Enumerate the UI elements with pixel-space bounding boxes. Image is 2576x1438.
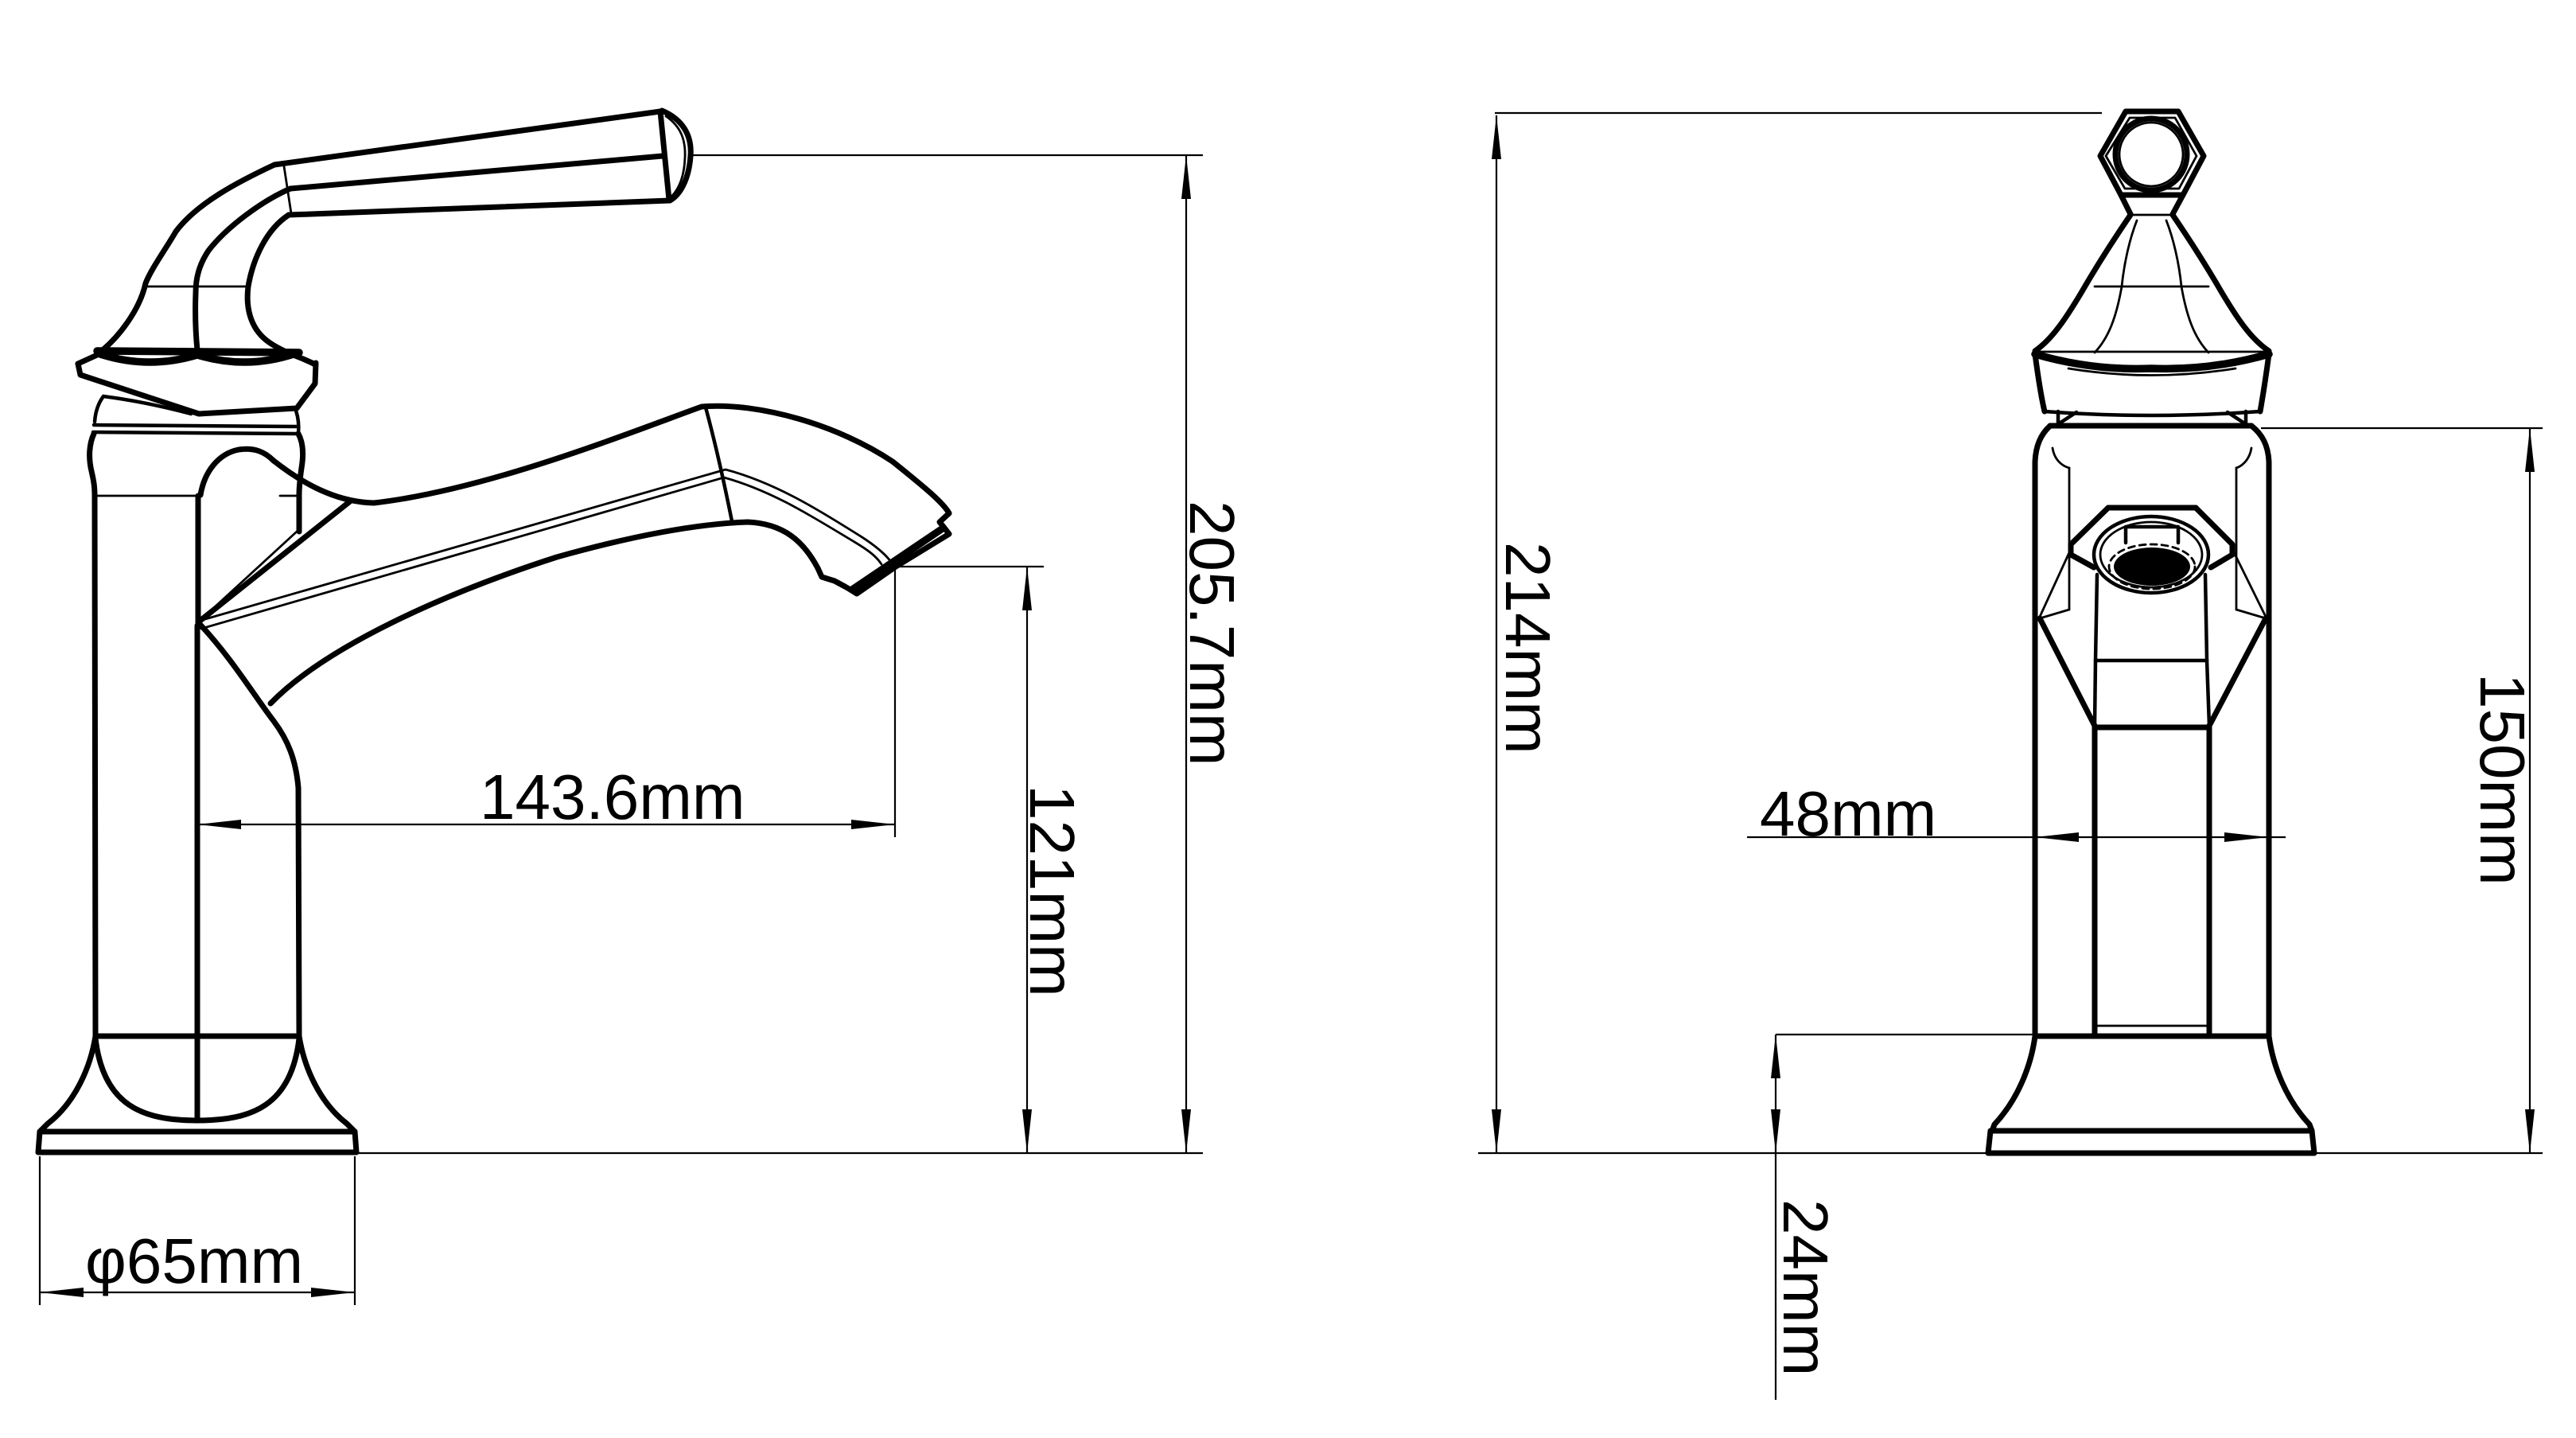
svg-text:24mm: 24mm — [1770, 1199, 1841, 1376]
svg-text:214mm: 214mm — [1492, 542, 1563, 754]
svg-text:φ65mm: φ65mm — [85, 1226, 303, 1296]
svg-text:121mm: 121mm — [1017, 785, 1088, 997]
svg-text:150mm: 150mm — [2467, 673, 2538, 886]
svg-text:48mm: 48mm — [1760, 778, 1936, 849]
svg-text:205.7mm: 205.7mm — [1177, 501, 1247, 766]
svg-text:143.6mm: 143.6mm — [480, 762, 745, 832]
